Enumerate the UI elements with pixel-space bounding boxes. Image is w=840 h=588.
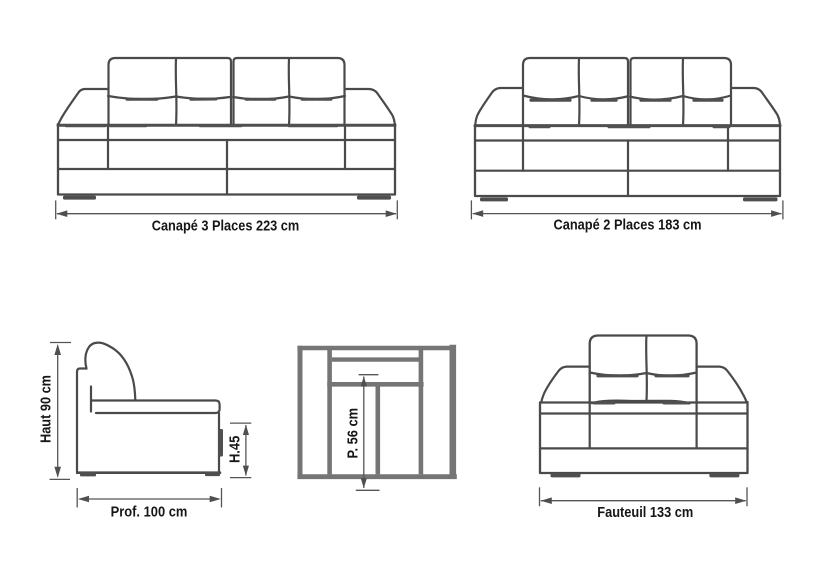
svg-text:Canapé 3 Places 223 cm: Canapé 3 Places 223 cm <box>152 217 300 234</box>
svg-text:Fauteuil 133 cm: Fauteuil 133 cm <box>597 504 693 521</box>
svg-text:Prof. 100 cm: Prof. 100 cm <box>111 504 188 521</box>
svg-text:H.45: H.45 <box>227 436 244 463</box>
svg-text:P. 56 cm: P. 56 cm <box>344 408 361 459</box>
svg-text:Canapé 2 Places 183 cm: Canapé 2 Places 183 cm <box>554 216 702 233</box>
svg-text:Haut 90 cm: Haut 90 cm <box>38 375 55 443</box>
